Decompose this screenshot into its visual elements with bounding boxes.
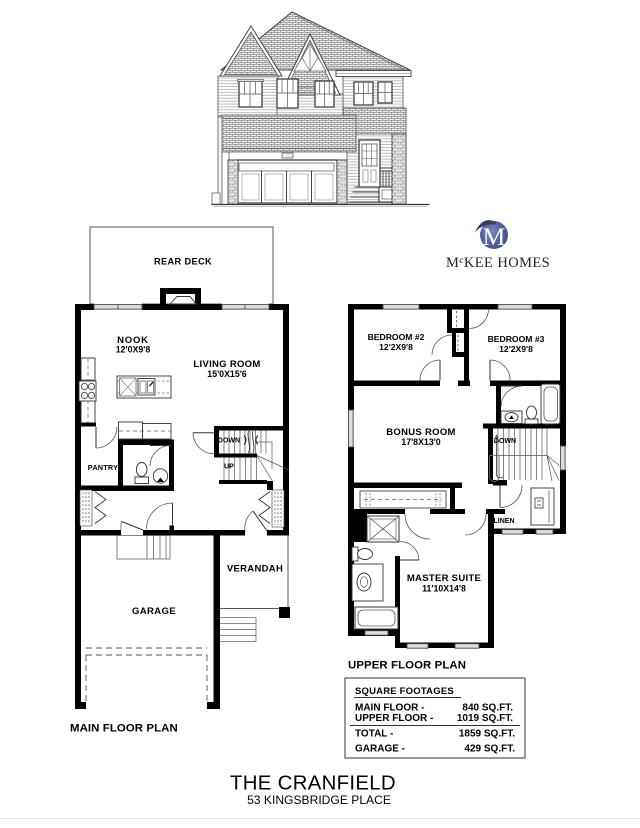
svg-text:REAR DECK: REAR DECK xyxy=(154,257,212,267)
svg-text:BEDROOM #2: BEDROOM #2 xyxy=(368,332,425,342)
svg-text:VERANDAH: VERANDAH xyxy=(227,564,283,575)
svg-text:BEDROOM #3: BEDROOM #3 xyxy=(488,334,545,344)
svg-text:DOWN: DOWN xyxy=(494,438,516,445)
svg-text:GARAGE -: GARAGE - xyxy=(355,744,405,755)
svg-text:SQUARE FOOTAGES: SQUARE FOOTAGES xyxy=(355,686,454,697)
svg-text:MAIN FLOOR PLAN: MAIN FLOOR PLAN xyxy=(70,723,178,735)
svg-text:GARAGE: GARAGE xyxy=(132,606,176,617)
svg-text:53 KINGSBRIDGE PLACE: 53 KINGSBRIDGE PLACE xyxy=(247,793,391,807)
svg-text:UP: UP xyxy=(224,464,234,471)
svg-text:840 SQ.FT.: 840 SQ.FT. xyxy=(462,703,513,714)
svg-text:LINEN: LINEN xyxy=(494,518,515,525)
svg-text:11'10X14'8: 11'10X14'8 xyxy=(422,584,466,594)
svg-text:M: M xyxy=(483,222,506,251)
svg-text:17'8X13'0: 17'8X13'0 xyxy=(401,437,441,447)
svg-text:UPPER FLOOR -: UPPER FLOOR - xyxy=(355,713,433,724)
svg-text:THE CRANFIELD: THE CRANFIELD xyxy=(230,773,396,795)
svg-text:429 SQ.FT.: 429 SQ.FT. xyxy=(464,744,515,755)
svg-text:DOWN: DOWN xyxy=(218,438,240,445)
svg-text:UPPER FLOOR PLAN: UPPER FLOOR PLAN xyxy=(348,660,466,672)
svg-text:1019 SQ.FT.: 1019 SQ.FT. xyxy=(457,713,513,724)
svg-text:PANTRY: PANTRY xyxy=(88,463,118,472)
svg-text:15'0X15'6: 15'0X15'6 xyxy=(207,369,247,379)
svg-text:12'0X9'8: 12'0X9'8 xyxy=(116,345,151,355)
svg-text:TOTAL -: TOTAL - xyxy=(355,729,393,740)
svg-text:MAIN FLOOR -: MAIN FLOOR - xyxy=(355,703,424,714)
svg-text:12'2X9'8: 12'2X9'8 xyxy=(499,344,533,354)
svg-text:12'2X9'8: 12'2X9'8 xyxy=(379,342,413,352)
svg-text:MASTER SUITE: MASTER SUITE xyxy=(407,573,481,584)
svg-text:1859 SQ.FT.: 1859 SQ.FT. xyxy=(459,729,515,740)
